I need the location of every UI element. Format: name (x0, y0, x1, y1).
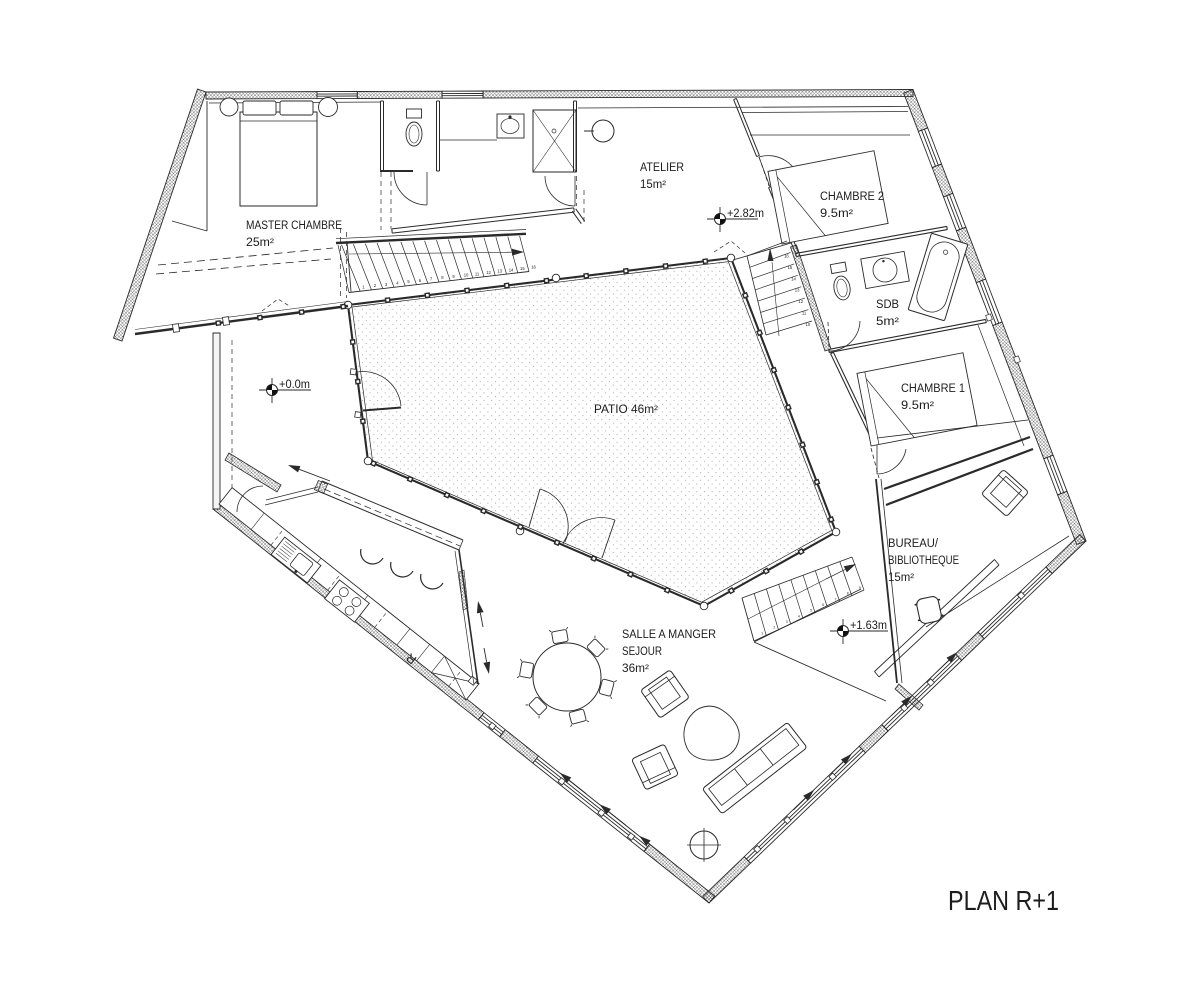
svg-text:+2.82m: +2.82m (727, 208, 764, 220)
svg-text:25m²: 25m² (246, 237, 274, 249)
svg-text:SEJOUR: SEJOUR (622, 646, 662, 658)
svg-text:14: 14 (509, 267, 514, 272)
svg-text:CHAMBRE 2: CHAMBRE 2 (820, 191, 884, 203)
svg-text:1: 1 (761, 631, 763, 635)
svg-text:10: 10 (464, 273, 469, 278)
svg-text:15m²: 15m² (888, 572, 914, 584)
svg-text:36m²: 36m² (622, 663, 649, 675)
svg-text:12: 12 (798, 299, 803, 304)
svg-text:SALLE A MANGER: SALLE A MANGER (622, 629, 716, 641)
svg-text:12: 12 (486, 270, 491, 275)
svg-text:PATIO 46m²: PATIO 46m² (594, 404, 658, 416)
svg-text:15: 15 (788, 265, 793, 270)
svg-text:+1.63m: +1.63m (850, 620, 887, 632)
svg-text:13: 13 (795, 288, 800, 293)
svg-text:9.5m²: 9.5m² (820, 208, 853, 220)
svg-text:6: 6 (822, 603, 824, 607)
svg-text:16: 16 (531, 265, 536, 270)
svg-text:3: 3 (786, 620, 788, 624)
svg-text:ATELIER: ATELIER (640, 162, 684, 174)
svg-text:16: 16 (784, 253, 789, 258)
svg-text:2: 2 (773, 626, 775, 630)
svg-text:11: 11 (475, 271, 480, 276)
svg-text:4: 4 (798, 614, 800, 618)
svg-text:9.5m²: 9.5m² (901, 400, 934, 412)
svg-text:PLAN R+1: PLAN R+1 (948, 885, 1059, 916)
svg-text:7: 7 (835, 597, 837, 601)
svg-text:BUREAU/: BUREAU/ (888, 538, 939, 550)
svg-text:15m²: 15m² (640, 179, 666, 191)
svg-text:13: 13 (497, 269, 502, 274)
svg-text:MASTER CHAMBRE: MASTER CHAMBRE (246, 220, 342, 232)
svg-text:BIBLIOTHEQUE: BIBLIOTHEQUE (888, 555, 959, 567)
svg-text:11: 11 (802, 311, 807, 316)
svg-text:15: 15 (520, 266, 525, 271)
svg-text:5m²: 5m² (876, 316, 899, 328)
svg-text:+0.0m: +0.0m (279, 379, 310, 391)
svg-text:CHAMBRE 1: CHAMBRE 1 (901, 383, 965, 395)
svg-text:14: 14 (791, 276, 796, 281)
svg-text:10: 10 (806, 322, 811, 327)
svg-text:SDB: SDB (876, 299, 899, 311)
svg-text:5: 5 (810, 609, 812, 613)
